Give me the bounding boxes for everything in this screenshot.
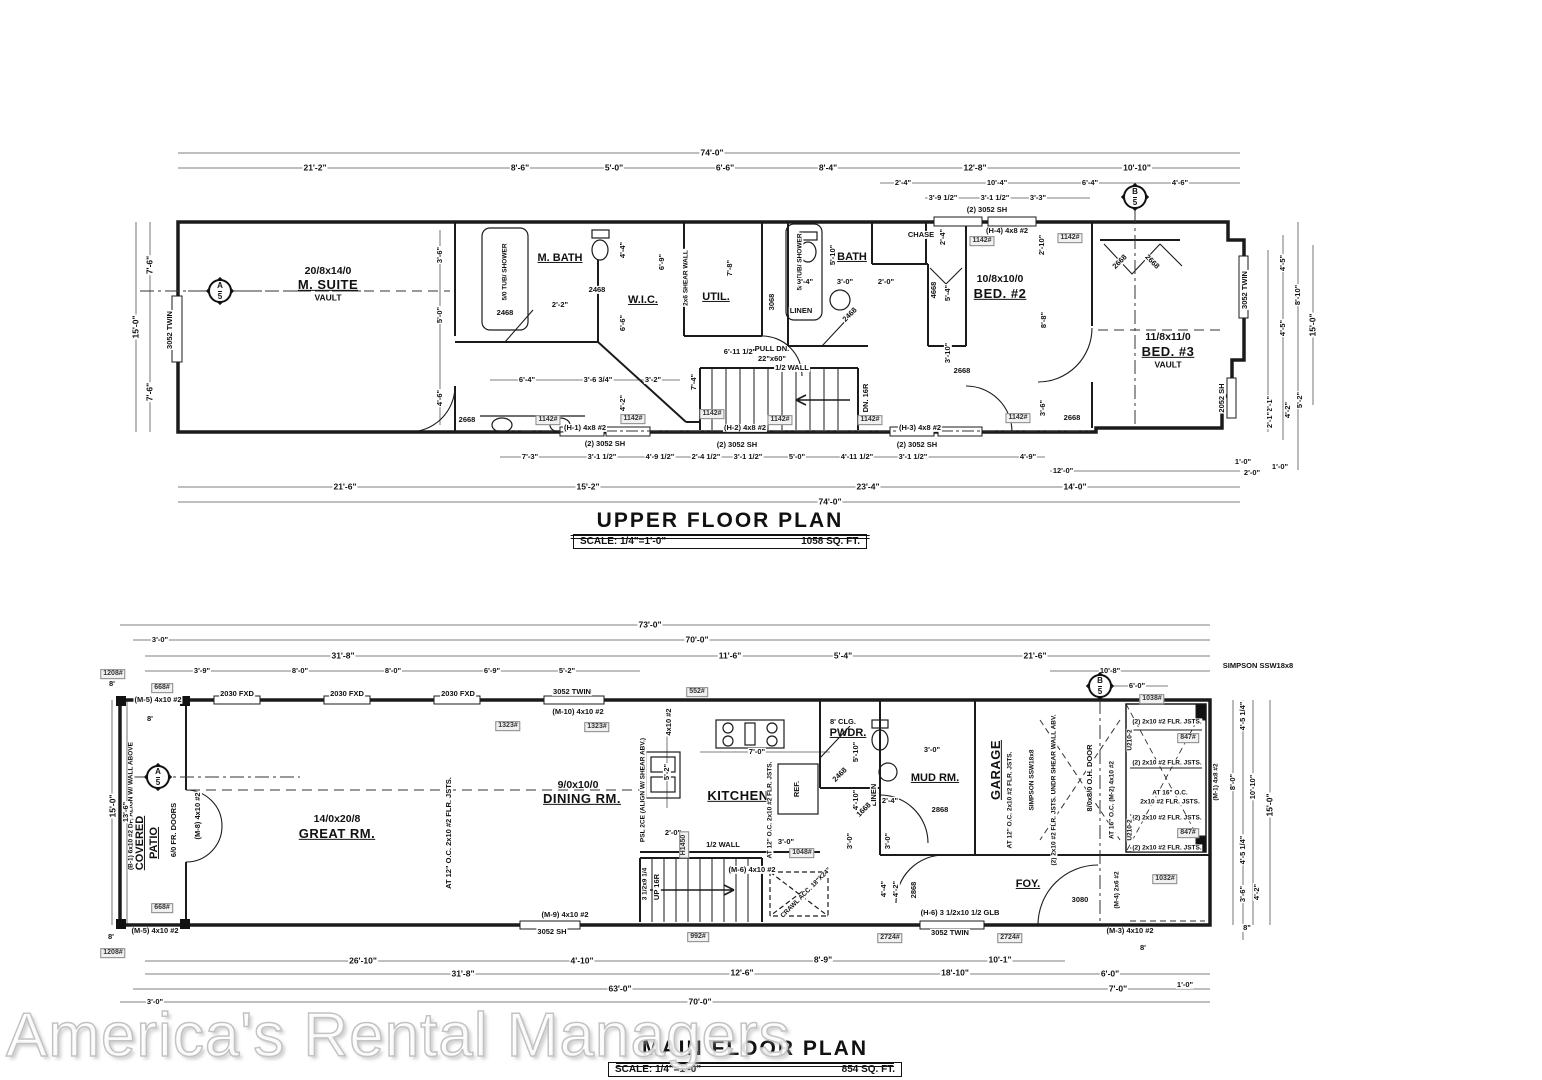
joist-note: (2) 2x10 #2 FLR. JSTS. UNDR SHEAR WALL A… xyxy=(1050,713,1057,866)
dim-label: 2'-4 1/2" xyxy=(691,453,722,461)
dim-label: 8" xyxy=(1242,924,1252,932)
half-wall-note: 1/2 WALL xyxy=(705,841,741,849)
dim-label: 3'-1 1/2" xyxy=(898,453,929,461)
dim-label: 15'-2" xyxy=(575,482,600,491)
door-tag: 2468 xyxy=(496,309,515,317)
load-tag: 1142# xyxy=(620,414,645,424)
room-note: VAULT xyxy=(1153,360,1182,369)
joist-note: (2) 2x10 #2 FLR. JSTS. xyxy=(1131,718,1202,725)
scale-text: SCALE: 1/4"=1'-0" xyxy=(580,536,666,547)
dim-label: 4'-5 1/4" xyxy=(1239,835,1247,866)
joist-note: AT 12" O.C. 2x10 #2 FLR. JSTS. xyxy=(1006,751,1013,850)
dim-label: 4'-5 1/4" xyxy=(1239,701,1247,732)
dim-label: 15'-0" xyxy=(1308,312,1317,337)
dim-label: 5'-4" xyxy=(944,284,952,302)
room-label-chase: CHASE xyxy=(907,231,935,239)
header-label: (M-10) 4x10 #2 xyxy=(551,708,604,716)
header-label: (M-5) 4x10 #2 xyxy=(130,927,179,935)
dim-label: 4'-10" xyxy=(569,956,594,965)
dim-label: 73'-0" xyxy=(637,620,662,629)
dim-label: 23'-4" xyxy=(855,482,880,491)
window-label: 3052 TWIN xyxy=(166,310,174,350)
load-tag: 1142# xyxy=(1057,233,1082,243)
load-tag: 847# xyxy=(1177,828,1199,838)
dim-label: 15'-0" xyxy=(108,793,117,818)
room-label-kitchen: KITCHEN xyxy=(706,789,769,803)
header-label: (M-1) 4x8 #2 xyxy=(1212,762,1219,801)
room-size: 14/0x20/8 xyxy=(313,814,362,826)
dim-label: 5'-10" xyxy=(852,741,860,763)
dim-label: 6'-0" xyxy=(1128,682,1146,690)
door-tag: 2868 xyxy=(910,881,918,900)
dim-label: 2'-0" xyxy=(1243,469,1261,477)
section-marker-b5: B5 xyxy=(1085,671,1115,701)
hardware-tag: U210-2 xyxy=(1126,818,1133,841)
door-tag: 2468 xyxy=(588,286,607,294)
main-plan-fixtures xyxy=(116,696,897,929)
dim-label: 3'-9" xyxy=(193,667,211,675)
upper-plan-outer-walls xyxy=(178,222,1244,432)
joist-note: AT 16" O.C. xyxy=(1151,789,1188,796)
dim-label: 4'-9" xyxy=(1019,453,1037,461)
joist-note: 2x10 #2 FLR. JSTS. xyxy=(1139,798,1201,805)
header-label: (H-4) 4x8 #2 xyxy=(985,227,1029,235)
dim-label: 21'-6" xyxy=(332,482,357,491)
window-label: 3052 TWIN xyxy=(930,929,970,937)
dim-label: 3'-0" xyxy=(923,746,941,754)
room-note: VAULT xyxy=(313,293,342,302)
load-tag: 1142# xyxy=(969,236,994,246)
header-label: (H-2) 4x8 #2 xyxy=(723,424,767,432)
half-wall-note: 1/2 WALL xyxy=(774,364,810,372)
load-tag: 1142# xyxy=(857,415,882,425)
dim-label: 14'-0" xyxy=(1062,482,1087,491)
dim-label: 3'-10" xyxy=(944,342,952,364)
area-text: 1058 SQ. FT. xyxy=(801,536,860,547)
dim-label: 2'-1" xyxy=(1266,411,1274,429)
dim-label: 63'-0" xyxy=(607,984,632,993)
dim-label: 7'-3" xyxy=(521,453,539,461)
strong-wall-note: SIMPSON SSW18x8 xyxy=(1028,748,1035,811)
hardware-tag: U210-2 xyxy=(1126,728,1133,751)
marker-number: 5 xyxy=(1098,686,1102,696)
window-label: 2030 FXD xyxy=(329,690,365,698)
dim-label: 3'-0" xyxy=(151,636,169,644)
dim-label: 8'-4" xyxy=(818,163,838,172)
header-label: (H-1) 4x8 #2 xyxy=(563,424,607,432)
marker-letter: B xyxy=(1132,188,1138,196)
dim-label: 15'-0" xyxy=(1265,792,1274,817)
header-label: (M-6) 4x10 #2 xyxy=(727,866,776,874)
dim-label: 3'-3" xyxy=(1029,194,1047,202)
dim-label: 3'-0" xyxy=(777,838,795,846)
dim-label: 8'-0" xyxy=(384,667,402,675)
dim-label: 3'-2" xyxy=(644,376,662,384)
dim-label: 7'-6" xyxy=(145,255,154,275)
dim-label: 4'-2" xyxy=(1253,883,1261,901)
room-label-dining: DINING RM. xyxy=(542,792,622,806)
dim-label: 15'-0" xyxy=(131,314,140,339)
header-label: (M-8) 4x10 #2 xyxy=(194,791,202,840)
window-label: 2030 FXD xyxy=(219,690,255,698)
dim-label: 7'-8" xyxy=(726,259,734,277)
load-tag: 1323# xyxy=(495,721,520,731)
room-label-pwdr: PWDR. xyxy=(829,727,868,739)
dim-label: 3'-1 1/2" xyxy=(587,453,618,461)
dim-label: 5'-4" xyxy=(833,651,853,660)
dim-label: 6'-9" xyxy=(658,253,666,271)
dim-label: 2'-4" xyxy=(894,179,912,187)
dim-label: 6'-11 1/2" xyxy=(723,348,757,356)
marker-letter: A xyxy=(155,768,161,776)
stair-note: UP 16R xyxy=(653,873,661,901)
dim-label: 3'-0" xyxy=(846,832,854,850)
dim-label: 12'-6" xyxy=(729,968,754,977)
dim-label: 7'-6" xyxy=(145,382,154,402)
dim-label: 1'-0" xyxy=(1176,981,1194,989)
dim-label: 5'-2" xyxy=(1296,391,1304,409)
dim-label: 8' xyxy=(146,715,154,723)
joist-note: (2) 2x10 #2 FLR. JSTS. xyxy=(1131,759,1202,766)
section-marker-b5: B5 xyxy=(1120,182,1150,212)
floor-plan-sheet: 74'-0" 21'-2" 8'-6" 5'-0" 6'-6" 8'-4" 12… xyxy=(0,0,1542,1080)
window-label: 2052 SH xyxy=(1218,382,1226,413)
header-label: (M-3) 4x10 #2 xyxy=(1105,927,1154,935)
fridge-label: REF. xyxy=(793,780,801,798)
area-text: 854 SQ. FT. xyxy=(842,1064,895,1075)
load-tag: 668# xyxy=(151,683,173,693)
load-tag: 1323# xyxy=(584,722,609,732)
load-tag: 2724# xyxy=(997,933,1022,943)
header-label: (H-3) 4x8 #2 xyxy=(898,424,942,432)
sink-icon xyxy=(879,763,897,781)
header-label: AT 16" O.C. (M-2) 4x10 #2 xyxy=(1108,760,1115,840)
beam-note: 4x10 #2 xyxy=(665,707,673,736)
dim-label: 4'-6" xyxy=(436,389,444,407)
door-tag: 3068 xyxy=(768,293,776,312)
dim-label: 4'-2" xyxy=(892,880,900,898)
dim-label: 10'-10" xyxy=(1249,774,1257,801)
dim-label: 6'-4" xyxy=(518,376,536,384)
room-label-great: GREAT RM. xyxy=(298,827,376,841)
load-tag: 1208# xyxy=(100,948,125,958)
dim-label: 31'-8" xyxy=(450,969,475,978)
load-tag: 668# xyxy=(151,903,173,913)
room-size: 10/8x10/0 xyxy=(976,274,1025,286)
room-label-linen: LINEN xyxy=(789,307,814,315)
dim-label: 4'-11 1/2" xyxy=(840,453,874,461)
stair-stringer-note: 3 1/2x9 1/4 xyxy=(641,867,648,902)
dim-label: 3'-1 1/2" xyxy=(733,453,764,461)
dim-label: 2'-0" xyxy=(877,278,895,286)
dim-label: 7'-0" xyxy=(748,748,766,756)
dim-label: 12'-0" xyxy=(1052,467,1074,475)
room-label-mud: MUD RM. xyxy=(910,772,960,784)
dim-label: 3'-6" xyxy=(436,246,444,264)
marker-number: 5 xyxy=(156,777,160,787)
door-tag: 2868 xyxy=(931,806,950,814)
dim-label: 6'-6" xyxy=(715,163,735,172)
dim-label: 1'-0" xyxy=(1271,463,1289,471)
dim-label: 6'-0" xyxy=(1100,969,1120,978)
marker-number: 5 xyxy=(218,291,222,301)
ceiling-note: 8' CLG. xyxy=(829,718,857,726)
dim-label: 18'-10" xyxy=(940,968,970,977)
load-tag: 1142# xyxy=(535,415,560,425)
dim-label: 4'-4" xyxy=(880,880,888,898)
dim-label: 6'-9" xyxy=(483,667,501,675)
stove-icon xyxy=(716,720,784,748)
load-tag: 2724# xyxy=(877,933,902,943)
door-tag: 4668 xyxy=(930,281,938,300)
dim-label: 5'-2" xyxy=(558,667,576,675)
room-label-patio: PATIO xyxy=(148,826,160,860)
dim-label: 4'-4" xyxy=(619,241,627,259)
load-tag: 1142# xyxy=(767,415,792,425)
load-tag: 1142# xyxy=(1005,413,1030,423)
room-label-bath: BATH xyxy=(836,251,868,263)
dim-label: 12'-8" xyxy=(962,163,987,172)
window-label: (2) 3052 SH xyxy=(896,441,938,449)
load-tag: 552# xyxy=(686,687,708,697)
strong-wall-note: SIMPSON SSW18x8 xyxy=(1222,662,1294,670)
load-tag: 847# xyxy=(1177,733,1199,743)
dim-label: 74'-0" xyxy=(817,497,842,506)
header-label: (M-4) 2x6 #2 xyxy=(1113,870,1120,909)
fixture-label: 5/0 TUB/ SHOWER xyxy=(501,242,508,301)
dim-label: 74'-0" xyxy=(699,148,724,157)
dim-label: 11'-6" xyxy=(718,651,743,660)
window-label: (2) 3052 SH xyxy=(966,206,1008,214)
dim-label: 2'-10" xyxy=(1038,234,1046,256)
dim-label: 21'-6" xyxy=(1022,651,1047,660)
dim-label: 10'-1" xyxy=(987,955,1012,964)
room-label-bed2: BED. #2 xyxy=(973,287,1028,301)
dim-label: 70'-0" xyxy=(684,635,709,644)
dim-label: 8'-9" xyxy=(813,955,833,964)
dim-label: 10'-4" xyxy=(986,179,1008,187)
dim-label: 5'-0" xyxy=(436,306,444,324)
dim-label: 8'-10" xyxy=(1294,284,1302,306)
upper-plan-windows xyxy=(172,217,1248,436)
section-marker-a5: A5 xyxy=(205,276,235,306)
dim-label: 13'-6" xyxy=(122,801,130,823)
stair-note: DN. 16R xyxy=(862,383,870,414)
door-tag: 3080 xyxy=(1071,896,1090,904)
room-label-garage: GARAGE xyxy=(989,739,1003,801)
header-label: (M-5) 4x10 #2 xyxy=(133,696,182,704)
load-tag: 1032# xyxy=(1152,874,1177,884)
dim-label: 8' xyxy=(1139,944,1147,952)
room-label-mbath: M. BATH xyxy=(536,252,583,264)
hardware-tag: H1450 xyxy=(679,832,689,859)
door-tag: 2668 xyxy=(458,416,477,424)
header-label: (M-9) 4x10 #2 xyxy=(540,911,589,919)
load-tag: 1038# xyxy=(1139,694,1164,704)
dim-label: 8'-0" xyxy=(1229,773,1237,791)
dim-label: 8' xyxy=(108,680,116,688)
dim-label: 26'-10" xyxy=(348,956,378,965)
marker-letter: B xyxy=(1097,677,1103,685)
dim-label: 4'-5" xyxy=(1279,254,1287,272)
door-note: 6/0 FR. DOORS xyxy=(170,802,178,858)
dim-label: 3'-0" xyxy=(884,832,892,850)
dim-label: 31'-8" xyxy=(330,651,355,660)
room-label-foy: FOY. xyxy=(1015,878,1041,890)
section-marker-a5: A5 xyxy=(143,762,173,792)
joist-note: AT 12" O.C. 2x10 #2 FLR. JSTS. xyxy=(445,776,453,890)
attic-access-note: 22"x60" xyxy=(757,355,787,363)
dim-label: 8'-6" xyxy=(510,163,530,172)
window-label: 3052 TWIN xyxy=(1241,270,1249,310)
dim-label: 8' xyxy=(107,933,115,941)
dim-label: 3'-9 1/2" xyxy=(928,194,959,202)
joist-note: (2) 2x10 #2 FLR. JSTS. xyxy=(1131,844,1202,851)
toilet-icon xyxy=(592,230,609,260)
dim-label: 4'-5" xyxy=(1279,319,1287,337)
dim-label: 3'-1 1/2" xyxy=(980,194,1011,202)
door-tag: 2668 xyxy=(1063,414,1082,422)
marker-letter: A xyxy=(217,282,223,290)
dim-label: 5'-0" xyxy=(788,453,806,461)
dim-label: 2'-2" xyxy=(551,301,569,309)
dim-label: 4'-2" xyxy=(619,394,627,412)
beam-note: PSL 2CE (ALIGN W/ SHEAR ABV.) xyxy=(639,737,646,843)
dim-label: 3'-4" xyxy=(796,278,814,286)
dim-label: 8'-8" xyxy=(1040,311,1048,329)
watermark: America's Rental Managers xyxy=(6,1000,791,1071)
load-tag: 1208# xyxy=(100,669,125,679)
room-size: 11/8x11/0 xyxy=(1144,332,1192,344)
window-label: 3052 TWIN xyxy=(552,688,592,696)
dim-label: 5'-0" xyxy=(604,163,624,172)
upper-plan-scale: SCALE: 1/4"=1'-0" 1058 SQ. FT. xyxy=(573,534,867,549)
dim-label: 21'-2" xyxy=(302,163,327,172)
header-label: (H-6) 3 1/2x10 1/2 GLB xyxy=(920,909,1001,917)
room-label-msuite: M. SUITE xyxy=(297,278,359,292)
dim-label: 3'-0" xyxy=(836,278,854,286)
dim-label: 5'-2" xyxy=(663,763,671,781)
dim-label: 3'-6" xyxy=(1039,399,1047,417)
load-tag: 992# xyxy=(687,932,709,942)
dim-label: 4'-6" xyxy=(1171,179,1189,187)
overhead-door-note: 8/0x8/0 O.H. DOOR xyxy=(1086,743,1094,812)
joist-note: (2) 2x10 #2 FLR. JSTS. xyxy=(1131,814,1202,821)
dim-label: 6'-6" xyxy=(619,314,627,332)
room-label-patio: COVERED xyxy=(134,815,146,871)
dim-label: 5'-10" xyxy=(829,244,837,266)
dim-label: 7'-0" xyxy=(1108,984,1128,993)
dim-label: 7'-4" xyxy=(690,373,698,391)
dim-label: 2'-4" xyxy=(939,228,947,246)
door-tag: 2668 xyxy=(953,367,972,375)
dim-label: 3'-6" xyxy=(1239,885,1247,903)
window-label: 3052 SH xyxy=(536,928,567,936)
dim-label: 1'-0" xyxy=(1234,458,1252,466)
room-label-bed3: BED. #3 xyxy=(1141,345,1196,359)
marker-number: 5 xyxy=(1133,197,1137,207)
room-label-wic: W.I.C. xyxy=(627,294,659,306)
window-label: (2) 3052 SH xyxy=(716,441,758,449)
window-label: (2) 3052 SH xyxy=(584,440,626,448)
dim-label: 8'-0" xyxy=(291,667,309,675)
load-tag: 1048# xyxy=(789,848,814,858)
dim-label: 3'-6 3/4" xyxy=(583,376,614,384)
joist-note: AT 12" O.C. 2x10 #2 FLR. JSTS. xyxy=(766,761,773,860)
dim-label: 4'-2" xyxy=(1284,401,1292,419)
room-label-util: UTIL. xyxy=(701,291,731,303)
sink-icon xyxy=(830,290,850,310)
dim-label: 2'-4" xyxy=(881,797,899,805)
dim-label: 4'-9 1/2" xyxy=(645,453,676,461)
load-tag: 1142# xyxy=(699,409,724,419)
dim-label: 10'-10" xyxy=(1122,163,1152,172)
shear-wall-note: 2x6 SHEAR WALL xyxy=(682,249,689,307)
window-label: 2030 FXD xyxy=(440,690,476,698)
dim-label: 6'-4" xyxy=(1081,179,1099,187)
attic-access-note: PULL DN. xyxy=(754,345,790,353)
